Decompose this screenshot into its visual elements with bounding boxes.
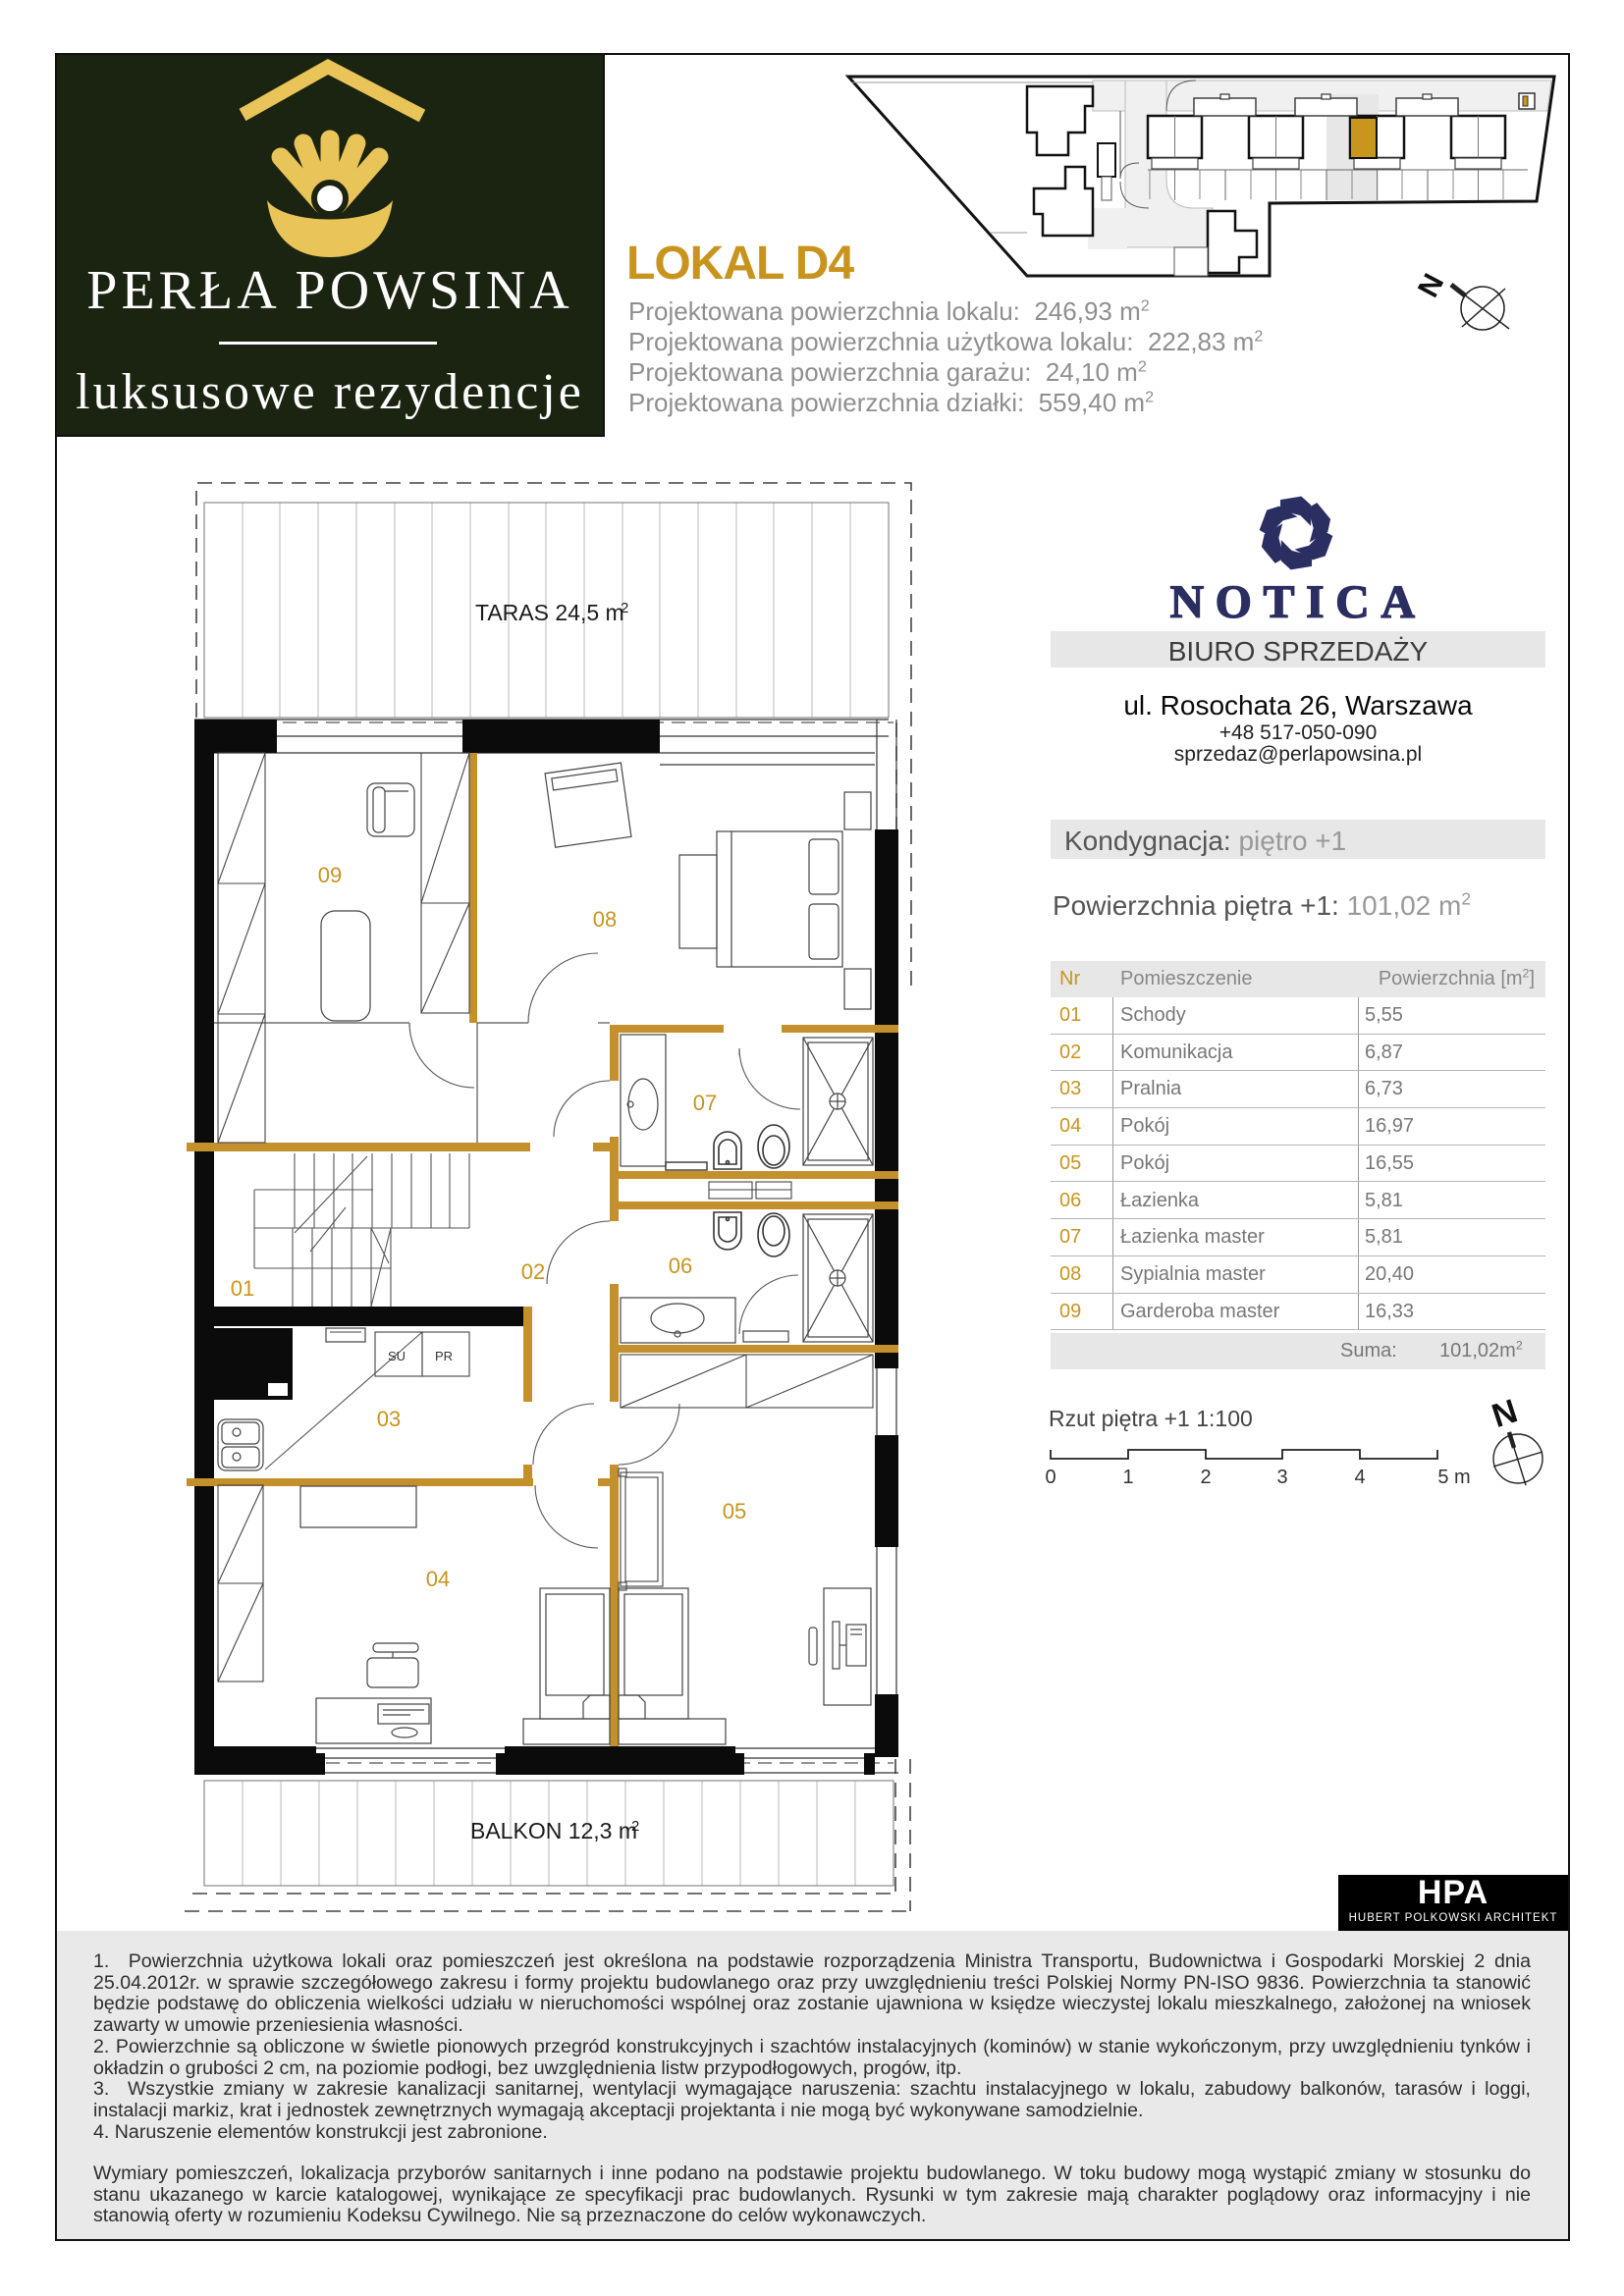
svg-text:2: 2 (621, 600, 628, 616)
svg-text:06: 06 (669, 1254, 692, 1278)
svg-text:BALKON 12,3 m: BALKON 12,3 m (470, 1818, 637, 1843)
svg-text:SU: SU (388, 1349, 406, 1363)
svg-text:N: N (1412, 269, 1450, 303)
svg-text:1: 1 (1122, 1467, 1133, 1488)
svg-text:N: N (1488, 1392, 1522, 1435)
svg-text:02: 02 (521, 1259, 545, 1284)
svg-text:PR: PR (435, 1349, 453, 1363)
svg-text:04: 04 (426, 1567, 450, 1591)
svg-text:2: 2 (631, 1818, 639, 1835)
svg-text:08: 08 (593, 907, 617, 932)
svg-text:0: 0 (1045, 1467, 1056, 1488)
svg-text:01: 01 (231, 1276, 254, 1301)
svg-text:5 m: 5 m (1437, 1467, 1470, 1488)
svg-text:03: 03 (377, 1407, 401, 1431)
svg-text:2: 2 (1200, 1467, 1211, 1488)
svg-text:07: 07 (693, 1091, 717, 1115)
svg-text:3: 3 (1276, 1467, 1287, 1488)
svg-text:4: 4 (1354, 1467, 1365, 1488)
svg-text:05: 05 (723, 1499, 746, 1523)
svg-text:TARAS 24,5 m: TARAS 24,5 m (475, 600, 624, 625)
svg-text:09: 09 (318, 863, 342, 887)
